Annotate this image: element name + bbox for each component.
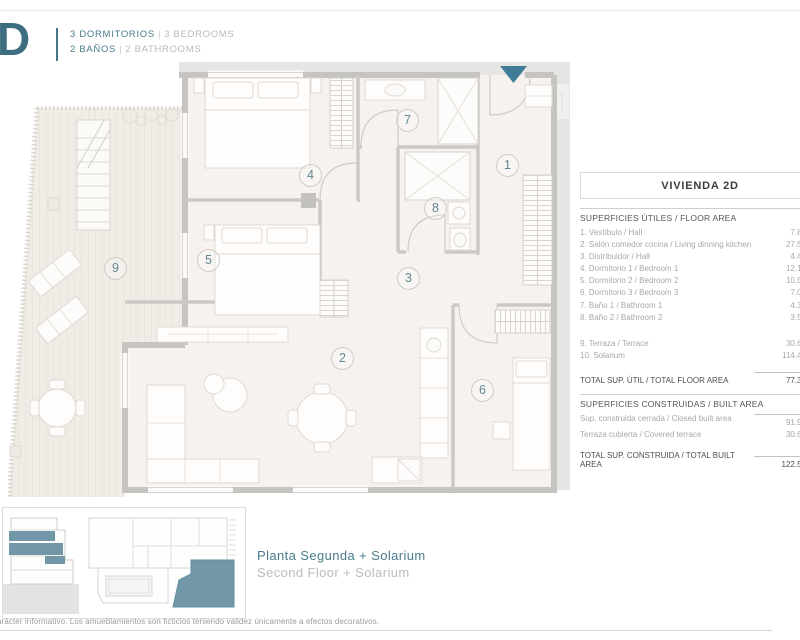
room-number-7: 7 bbox=[396, 109, 419, 132]
table-row: Sup. construida cerrada / Closed built a… bbox=[580, 413, 800, 429]
built-area-rows: Sup. construida cerrada / Closed built a… bbox=[580, 413, 800, 441]
caption-en: Second Floor + Solarium bbox=[257, 564, 426, 581]
room-number-5: 5 bbox=[197, 249, 220, 272]
keyplan-caption: Planta Segunda + Solarium Second Floor +… bbox=[257, 547, 426, 581]
keyplan-svg bbox=[3, 508, 243, 616]
floor-plan-svg bbox=[8, 58, 570, 510]
table-row: 2. Salón comedor cocina / Living dinning… bbox=[580, 239, 800, 251]
bathrooms-line: 2 BAÑOS|2 BATHROOMS bbox=[70, 42, 234, 57]
floor-area-section: SUPERFICIES ÚTILES / FLOOR AREA 1. Vestí… bbox=[580, 208, 800, 385]
room-number-6: 6 bbox=[471, 379, 494, 402]
bedrooms-en: 3 BEDROOMS bbox=[164, 29, 234, 40]
table-row: 3. Distribuidor / Hall4.43 bbox=[580, 251, 800, 263]
built-area-section: SUPERFICIES CONSTRUIDAS / BUILT AREA Sup… bbox=[580, 394, 800, 469]
floor-area-rows: 1. Vestíbulo / Hall7.83 2. Salón comedor… bbox=[580, 227, 800, 324]
separator: | bbox=[155, 29, 164, 40]
building-elevation bbox=[3, 518, 79, 614]
table-row: 5. Dormitorio 2 / Bedroom 210.53 bbox=[580, 275, 800, 287]
room-number-4: 4 bbox=[299, 164, 322, 187]
room-number-3: 3 bbox=[397, 267, 420, 290]
keyplan-inset bbox=[2, 507, 246, 619]
header-specs: 3 DORMITORIOS|3 BEDROOMS 2 BAÑOS|2 BATHR… bbox=[70, 27, 234, 57]
bedrooms-es: 3 DORMITORIOS bbox=[70, 29, 155, 40]
separator: | bbox=[116, 44, 125, 55]
keyplan-footprint bbox=[89, 518, 236, 607]
terrace-planter bbox=[48, 198, 59, 210]
outdoor-rows: 9. Terraza / Terrace30.64 10. Solarium11… bbox=[580, 338, 800, 362]
table-row: Terraza cubierta / Covered terrace30.64 bbox=[580, 429, 800, 441]
total-floor-area-row: TOTAL SUP. ÚTIL / TOTAL FLOOR AREA 77.37 bbox=[580, 372, 800, 385]
top-rule bbox=[0, 10, 800, 11]
table-row: 10. Solarium114.42 bbox=[580, 350, 800, 362]
floor-area-heading: SUPERFICIES ÚTILES / FLOOR AREA bbox=[580, 213, 800, 223]
bedroom1-furniture bbox=[194, 78, 321, 168]
room-number-1: 1 bbox=[496, 154, 519, 177]
table-row: 7. Baño 1 / Bathroom 14.32 bbox=[580, 300, 800, 312]
header-divider bbox=[56, 28, 58, 61]
baths-en: 2 BATHROOMS bbox=[125, 44, 201, 55]
terrace-stairs bbox=[77, 120, 110, 230]
room-number-9: 9 bbox=[104, 257, 127, 280]
terrace-planter bbox=[10, 446, 21, 457]
bedrooms-line: 3 DORMITORIOS|3 BEDROOMS bbox=[70, 27, 234, 42]
table-row: 8. Baño 2 / Bathroom 23.56 bbox=[580, 312, 800, 324]
table-row: 6. Dormitorio 3 / Bedroom 37.07 bbox=[580, 287, 800, 299]
hall-closet bbox=[525, 85, 552, 107]
table-row: 1. Vestíbulo / Hall7.83 bbox=[580, 227, 800, 239]
total-built-area-row: TOTAL SUP. CONSTRUIDA / TOTAL BUILT AREA… bbox=[580, 451, 800, 469]
floor-plan bbox=[8, 58, 570, 510]
bedroom2-furniture bbox=[204, 225, 320, 315]
footer-rule bbox=[0, 630, 772, 631]
unit-title: VIVIENDA 2D bbox=[580, 172, 800, 199]
room-number-2: 2 bbox=[331, 347, 354, 370]
table-row: 9. Terraza / Terrace30.64 bbox=[580, 338, 800, 350]
wall-junction bbox=[301, 193, 316, 208]
area-table: VIVIENDA 2D SUPERFICIES ÚTILES / FLOOR A… bbox=[580, 172, 800, 469]
disclaimer-text: arácter informativo. Los amueblamientos … bbox=[0, 617, 379, 626]
caption-es: Planta Segunda + Solarium bbox=[257, 547, 426, 564]
room-number-8: 8 bbox=[424, 197, 447, 220]
brochure-page: D 3 DORMITORIOS|3 BEDROOMS 2 BAÑOS|2 BAT… bbox=[0, 0, 800, 640]
table-row: 4. Dormitorio 1 / Bedroom 112.13 bbox=[580, 263, 800, 275]
built-area-heading: SUPERFICIES CONSTRUIDAS / BUILT AREA bbox=[580, 399, 800, 409]
baths-es: 2 BAÑOS bbox=[70, 44, 116, 55]
